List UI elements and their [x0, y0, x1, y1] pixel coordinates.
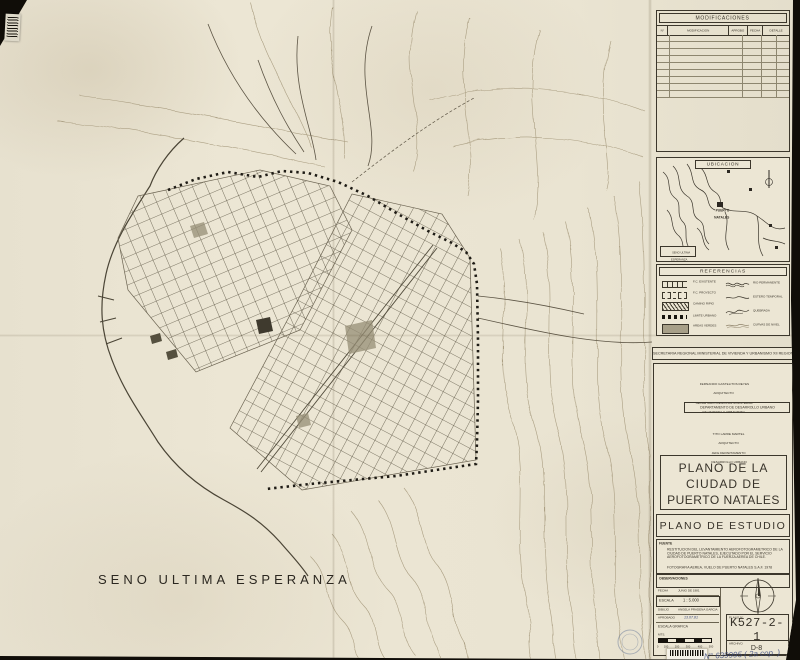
scanned-map-sheet: SENO ULTIMA ESPERANZA MODIFICACIONES N° … [0, 0, 800, 660]
legend-symbol-stream [725, 294, 750, 302]
legend-symbol-urban-limit [662, 315, 687, 319]
fecha-row: FECHA JUNIO DE 1981 [656, 588, 719, 596]
legend-label: QUEBRADA [753, 308, 787, 314]
col-detalle: DETALLE [769, 29, 782, 32]
inset-city-label: PUERTO NATALES [697, 206, 747, 220]
observaciones-label: OBSERVACIONES [659, 576, 711, 582]
legend-symbol-contour [725, 321, 750, 330]
institution-banner: SECRETARIA REGIONAL MINISTERIAL DE VIVIE… [652, 347, 795, 360]
modificaciones-empty-rows [657, 35, 789, 98]
graphic-scale-bar [658, 638, 712, 643]
plan-title-line: PUERTO NATALES [667, 493, 780, 507]
col-fecha: FECHA [750, 29, 760, 32]
barcode-sticker [666, 648, 708, 660]
sea-label: SENO ULTIMA ESPERANZA [98, 572, 351, 587]
paper: SENO ULTIMA ESPERANZA MODIFICACIONES N° … [0, 0, 800, 660]
corner-sticker [4, 14, 20, 42]
fuente-box: FUENTE RESTITUCION DEL LEVANTAMIENTO AER… [656, 539, 790, 574]
escala-grafica-label: ESCALA GRAFICA [658, 624, 710, 630]
legend-symbol-railroad [662, 281, 687, 288]
inset-corner-label: SENO ULTIMA ESPERANZA [660, 246, 696, 257]
col-modificacion: MODIFICACION [687, 29, 709, 32]
department-box: DEPARTAMENTO DE DESARROLLO URBANO [684, 402, 790, 413]
meta-divider [720, 588, 721, 656]
plan-title-line: CIUDAD DE [686, 477, 761, 491]
col-aprobo: APROBO [731, 29, 744, 32]
legend-symbol-ravine [725, 307, 750, 316]
plano-number-box: PLANO N° K527-2-1 [726, 614, 789, 641]
fuente-label: FUENTE [659, 541, 683, 547]
col-numero: N° [660, 29, 663, 32]
institution-banner-text: SECRETARIA REGIONAL MINISTERIAL DE VIVIE… [653, 352, 793, 356]
modificaciones-title-box: MODIFICACIONES [659, 13, 787, 23]
referencias-box: REFERENCIAS F.C. EXISTENTE F.C. PROYECTO… [656, 264, 790, 336]
ubicacion-title-box: UBICACION [695, 160, 751, 169]
legend-label: RIO PERMANENTE [753, 280, 800, 286]
escala-row: ESCALA 1 : 5.000 [656, 596, 720, 607]
legend-label: ESTERO TEMPORAL [753, 294, 800, 300]
rivers [208, 24, 372, 166]
inset-compass [766, 170, 773, 188]
modificaciones-table: MODIFICACIONES N° MODIFICACION APROBO FE… [656, 10, 790, 152]
compass-rose [736, 576, 780, 618]
legend-label: CURVAS DE NIVEL [753, 322, 800, 328]
plano-number-value: K527-2-1 [727, 616, 787, 644]
plaza-block [256, 317, 273, 334]
street-grid [118, 170, 476, 490]
plan-subtitle-box: PLANO DE ESTUDIO [656, 514, 790, 537]
ubicacion-box: UBICACION PUERTO NATALES SENO ULTIMA ESP… [656, 157, 790, 262]
referencias-title: REFERENCIAS [700, 269, 746, 274]
aprobado-row: APROBADO 13.07.81 [656, 615, 719, 623]
fuente-item: FOTOGRAFIA AEREA, VUELO DE PUERTO NATALE… [667, 566, 786, 569]
dibujo-row: DIBUJO ANGELA PRADENA GARCIA [656, 607, 719, 615]
legend-symbol-river [725, 280, 750, 288]
ubicacion-title: UBICACION [707, 162, 740, 167]
fuente-item: RESTITUCION DEL LEVANTAMIENTO AEROFOTOGR… [667, 548, 786, 559]
legend-symbol-road [662, 302, 689, 311]
department-label: DEPARTAMENTO DE DESARROLLO URBANO [700, 406, 775, 409]
plan-title-box: PLANO DE LA CIUDAD DE PUERTO NATALES [660, 455, 787, 510]
legend-symbol-railroad-projected [662, 292, 687, 299]
referencias-title-box: REFERENCIAS [659, 267, 787, 276]
plan-title-line: PLANO DE LA [679, 461, 769, 475]
legend-symbol-green-area [662, 324, 689, 334]
plan-subtitle: PLANO DE ESTUDIO [660, 520, 787, 532]
modificaciones-title: MODIFICACIONES [696, 15, 750, 20]
